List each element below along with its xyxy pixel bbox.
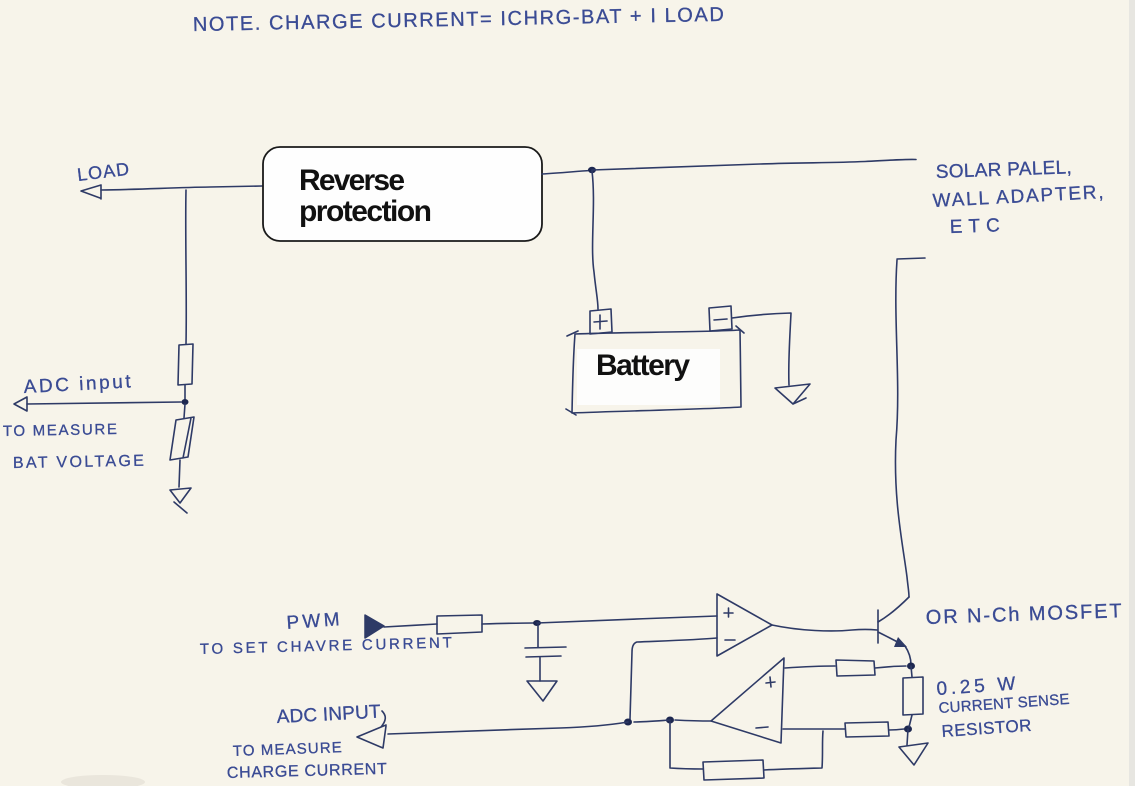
svg-text:protection: protection <box>299 195 432 228</box>
svg-text:Battery: Battery <box>596 349 690 382</box>
svg-text:PWM: PWM <box>286 609 340 634</box>
svg-text:ETC: ETC <box>949 215 1000 238</box>
svg-text:TO MEASURE: TO MEASURE <box>3 421 117 440</box>
svg-text:Reverse: Reverse <box>299 164 405 197</box>
svg-text:BAT VOLTAGE: BAT VOLTAGE <box>13 453 144 472</box>
